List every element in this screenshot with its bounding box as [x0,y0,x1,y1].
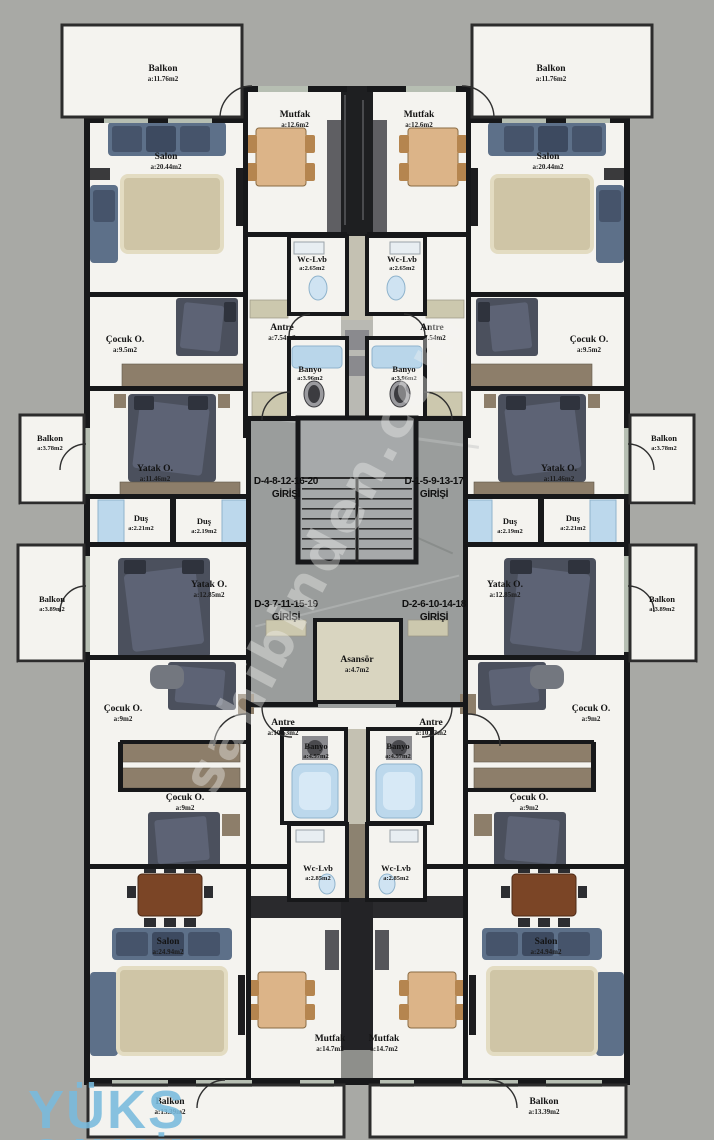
wardrobe-icon [474,482,594,495]
room-area: a:20.44m2 [533,163,564,171]
room-area: a:13.39m2 [529,1108,560,1116]
room-area: a:14.7m2 [316,1045,344,1053]
tv-icon [469,975,476,1035]
room-label: Banyo [304,741,327,751]
room-area: a:9m2 [114,715,133,723]
entrance-code: D-1-5-9-13-17 [405,476,465,487]
rug-icon [122,176,222,252]
room-area: a:9.5m2 [113,346,137,354]
room-area: a:12.6m2 [281,121,309,129]
room-label: Banyo [386,741,409,751]
entrance-word: GİRİŞİ [420,610,449,623]
bed-icon [476,298,538,356]
bed-icon [176,298,238,356]
room-area: a:7.54m2 [268,334,296,342]
bed-icon [118,558,210,658]
room-area: a:9m2 [176,804,195,812]
room-label: Balkon [148,64,178,74]
room-area: a:20.44m2 [151,163,182,171]
room-label: Duş [134,513,149,523]
room-label: Balkon [37,433,63,443]
logo-line2: GAYRİM [30,1130,206,1140]
room-label: Balkon [536,64,566,74]
room-area: a:14.7m2 [370,1045,398,1053]
room-area: a:2.65m2 [389,265,414,272]
entrance-code: D-4-8-12-16-20 [254,476,319,487]
tv-icon [238,975,245,1035]
room-label: Balkon [39,594,65,604]
room-label: Çocuk O. [570,335,609,345]
rug-icon [492,176,592,252]
room-area: a:9.5m2 [577,346,601,354]
wardrobe-icon [470,364,592,388]
room-area: a:2.19m2 [191,528,216,535]
room-area: a:2.21m2 [560,525,585,532]
tv-icon [471,168,478,226]
room-label: Salon [537,152,560,162]
room-area: a:11.76m2 [148,75,179,83]
room-label: Çocuk O. [104,704,143,714]
room-area: a:4.57m2 [385,753,410,760]
room-area: a:2.85m2 [305,875,330,882]
room-label: Yatak O. [137,464,173,474]
room-area: a:2.21m2 [128,525,153,532]
room-area: a:3.78m2 [651,445,676,452]
room-label: Çocuk O. [572,704,611,714]
room-area: a:3.89m2 [39,606,64,613]
wardrobe-icon [122,364,244,388]
room-label: Çocuk O. [510,793,549,803]
room-area: a:10.53m2 [416,729,447,737]
room-label: Mutfak [280,110,311,120]
room-area: a:3.96m2 [297,375,322,382]
room-area: a:3.78m2 [37,445,62,452]
room-area: a:3.89m2 [649,606,674,613]
room-area: a:2.85m2 [383,875,408,882]
room-area: a:11.46m2 [544,475,575,483]
room-label: Wc-Lvb [381,863,411,873]
room-area: a:9m2 [582,715,601,723]
dining-table-icon [247,128,315,186]
room-area: a:10.53m2 [268,729,299,737]
room-label: Balkon [651,433,677,443]
rug-icon [488,968,596,1054]
room-area: a:12.85m2 [490,591,521,599]
room-label: Antre [270,323,294,333]
room-label: Balkon [649,594,675,604]
room-label: Balkon [529,1097,559,1107]
floor-plan-svg: Balkon a:11.76m2 Balkon a:11.76m2 Mutfak… [0,0,714,1140]
bed-icon [504,558,596,658]
room-label: Banyo [298,364,321,374]
entrance-code: D-2-6-10-14-18 [402,599,467,610]
room-label: Salon [157,937,180,947]
room-label: Duş [197,516,212,526]
room-label: Salon [535,937,558,947]
entrance-word: GİRİŞİ [420,487,449,500]
room-label: Antre [419,718,443,728]
room-label: Antre [271,718,295,728]
room-area: a:12.6m2 [405,121,433,129]
room-area: a:2.65m2 [299,265,324,272]
room-area: a:4.57m2 [303,753,328,760]
agency-logo: YÜKS GAYRİM [28,1080,206,1140]
room-area: a:11.46m2 [140,475,171,483]
wardrobe-icon [120,482,240,495]
room-label: Yatak O. [541,464,577,474]
room-label: Çocuk O. [106,335,145,345]
room-area: a:24.94m2 [153,948,184,956]
room-area: a:4.7m2 [345,666,369,674]
room-label: Salon [155,152,178,162]
side-table-icon [604,168,624,180]
room-label: Mutfak [369,1034,400,1044]
room-label: Duş [503,516,518,526]
room-label: Mutfak [315,1034,346,1044]
room-label: Asansör [340,655,374,665]
rug-icon [118,968,226,1054]
room-area: a:9m2 [520,804,539,812]
tv-icon [236,168,243,226]
room-area: a:11.76m2 [536,75,567,83]
room-label: Wc-Lvb [297,254,327,264]
room-label: Wc-Lvb [303,863,333,873]
dining-table-icon [399,128,467,186]
floor-plan-image: Balkon a:11.76m2 Balkon a:11.76m2 Mutfak… [0,0,714,1140]
room-label: Mutfak [404,110,435,120]
room-area: a:24.94m2 [531,948,562,956]
room-label: Yatak O. [487,580,523,590]
entrance-word: GİRİŞİ [272,487,301,500]
room-area: a:12.85m2 [194,591,225,599]
room-label: Duş [566,513,581,523]
room-label: Çocuk O. [166,793,205,803]
room-area: a:2.19m2 [497,528,522,535]
room-label: Wc-Lvb [387,254,417,264]
room-label: Yatak O. [191,580,227,590]
side-table-icon [90,168,110,180]
